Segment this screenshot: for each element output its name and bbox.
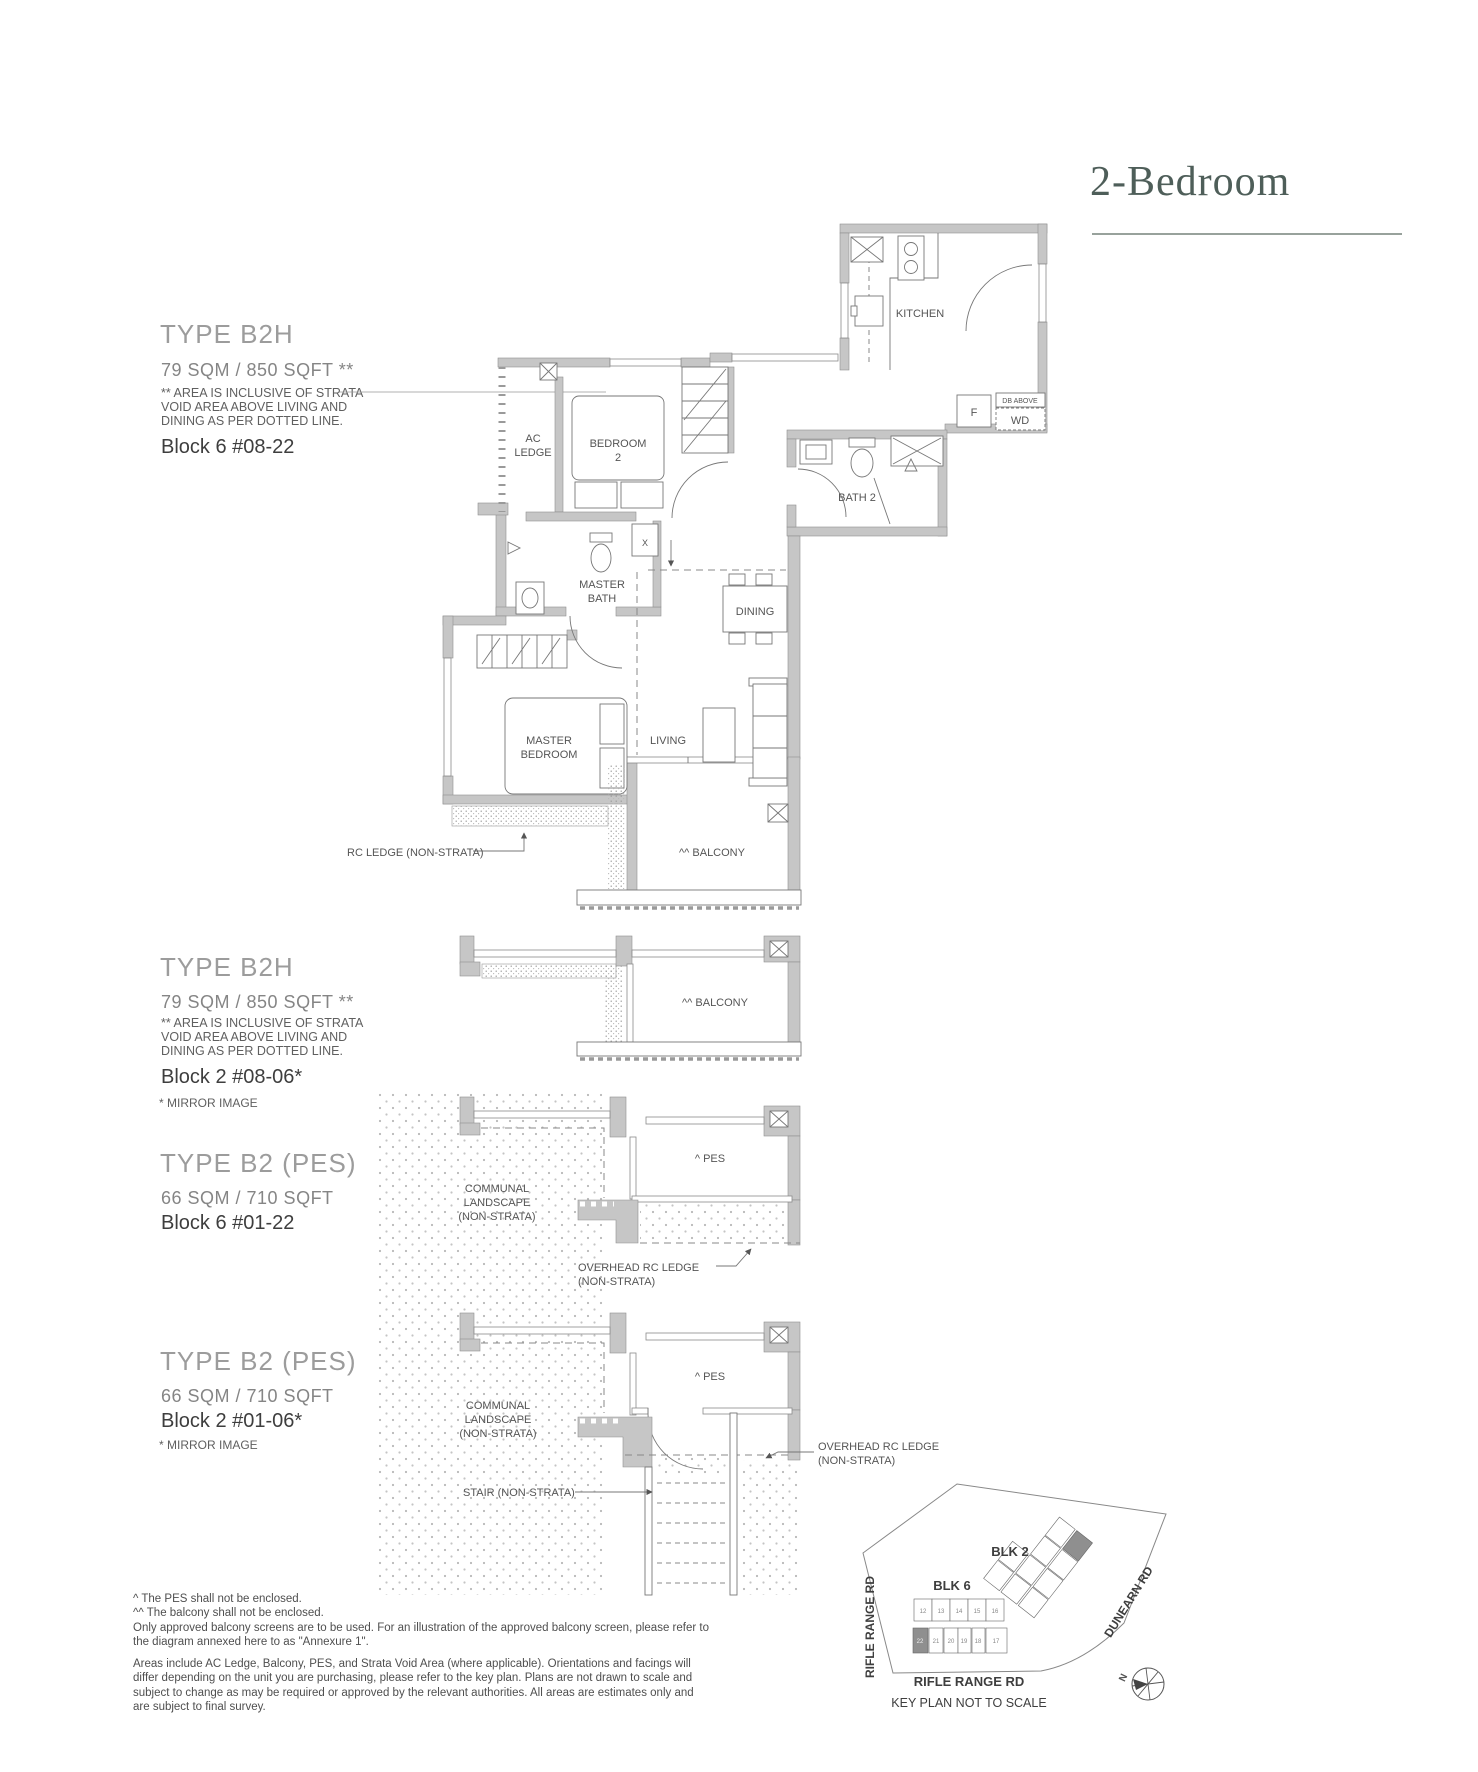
footnote-pes: ^ The PES shall not be enclosed. [133,1592,773,1606]
master-wardrobe [477,635,567,668]
section1-type: TYPE B2H [160,319,294,350]
x-box-column [770,941,788,957]
room-label-bedroom2-1: BEDROOM [590,438,647,450]
window [474,950,616,957]
unit-18: 18 [975,1639,982,1645]
title-underline [1092,233,1402,235]
rc-strip-column [605,964,623,1042]
label-communal-1: COMMUNAL [465,1183,529,1195]
living-furniture [703,678,787,786]
unit-14: 14 [956,1609,963,1615]
overhead-ledge-arrow [716,1249,751,1266]
pes-side-screen [630,1353,636,1415]
room-label-pes: ^ PES [695,1371,725,1383]
unit-22-highlighted: 22 [917,1639,924,1645]
master-bath-door-arc [570,616,622,668]
landscape-right-strip [742,1460,800,1595]
section4-mirror: * MIRROR IMAGE [159,1438,258,1452]
label-blk6: BLK 6 [933,1578,971,1593]
label-communal-3: (NON-STRATA) [459,1428,536,1440]
section2-block: Block 2 #08-06* [161,1066,302,1089]
unit-15: 15 [974,1609,981,1615]
window [646,1333,764,1340]
room-label-bedroom2-2: 2 [615,452,621,464]
unit-21: 21 [933,1639,940,1645]
floorplan-page: 2-Bedroom TYPE B2H 79 SQM / 850 SQFT ** … [0,0,1478,1772]
unit-16: 16 [992,1609,999,1615]
room-label-masterbath-1: MASTER [579,579,625,591]
communal-landscape-field [376,1300,606,1595]
stair [645,1413,737,1595]
label-wd: WD [1011,415,1029,427]
label-fridge: F [971,407,978,419]
page-title: 2-Bedroom [1090,158,1290,206]
keyplan-caption: KEY PLAN NOT TO SCALE [891,1696,1046,1710]
x-box-column [770,1327,788,1343]
room-label-masterbath-2: BATH [588,593,617,605]
compass-north-label: N [1117,1672,1130,1683]
label-overhead-ledge-1: OVERHEAD RC LEDGE [578,1262,699,1274]
balcony-rc-strip [607,765,625,889]
section4-block: Block 2 #01-06* [161,1410,302,1433]
footnotes: ^ The PES shall not be enclosed. ^^ The … [133,1592,773,1714]
label-overhead-ledge-1: OVERHEAD RC LEDGE [818,1441,939,1453]
pes-front-screen-stub [632,1408,648,1414]
room-label-kitchen: KITCHEN [896,308,944,320]
label-blk2: BLK 2 [991,1544,1029,1559]
footnote-areas-4: are subject to final survey. [133,1700,773,1714]
balcony-screen-track [627,964,633,1042]
pes-front-screen [703,1408,792,1414]
section3-block: Block 6 #01-22 [161,1212,294,1235]
label-communal-2: LANDSCAPE [465,1414,532,1426]
rc-ledge-strip [482,964,616,978]
label-stair: STAIR (NON-STRATA) [463,1487,575,1499]
section4-type: TYPE B2 (PES) [160,1346,357,1377]
walls [443,224,1047,897]
balcony-structure [577,765,801,908]
label-shaft-x: X [642,538,648,548]
section2-note-line3: DINING AS PER DOTTED LINE. [161,1044,363,1058]
section4-area: 66 SQM / 710 SQFT [161,1386,334,1407]
room-label-masterbedroom-1: MASTER [526,735,572,747]
unit-19: 19 [961,1639,968,1645]
unit-20: 20 [948,1639,955,1645]
section2-type: TYPE B2H [160,952,294,983]
label-communal-3: (NON-STRATA) [458,1211,535,1223]
label-rc-ledge: RC LEDGE (NON-STRATA) [347,847,484,859]
label-overhead-ledge-2: (NON-STRATA) [578,1276,655,1288]
balcony-slab [577,1042,801,1056]
footnote-screens-1: Only approved balcony screens are to be … [133,1621,773,1635]
section3-area: 66 SQM / 710 SQFT [161,1188,334,1209]
section2-note: ** AREA IS INCLUSIVE OF STRATA VOID AREA… [161,1016,363,1058]
unit-17: 17 [993,1639,1000,1645]
floor-plan-pes-1: ^ PES COMMUNAL LANDSCAPE (NON-STRATA) OV… [370,1085,840,1300]
bedroom2-door-arc [672,462,728,518]
room-label-masterbedroom-2: BEDROOM [521,749,578,761]
window [474,1327,610,1334]
footnote-areas-2: differ depending on the unit you are pur… [133,1671,773,1685]
road-label-dunearn: DUNEARN RD [1101,1564,1156,1640]
x-box-column [770,1111,788,1127]
label-communal-1: COMMUNAL [466,1400,530,1412]
footnote-balcony: ^^ The balcony shall not be enclosed. [133,1606,773,1620]
key-plan: 12 13 14 15 16 22 21 20 19 18 17 BLK 2 B… [845,1475,1175,1720]
pes-side-screen [630,1137,636,1199]
floor-plan-balcony-detail: ^^ BALCONY [440,925,820,1075]
footnote-spacer [133,1649,773,1657]
room-label-bath2: BATH 2 [838,492,876,504]
section2-note-line1: ** AREA IS INCLUSIVE OF STRATA [161,1016,363,1030]
road-label-rifle-range-bottom: RIFLE RANGE RD [914,1674,1025,1689]
label-communal-2: LANDSCAPE [464,1197,531,1209]
unit-12: 12 [920,1609,927,1615]
window [474,1111,610,1118]
section3-type: TYPE B2 (PES) [160,1148,357,1179]
room-label-ac-2: LEDGE [514,447,551,459]
pes-front-screen [632,1196,792,1202]
kitchen-door-arc [966,265,1032,331]
landscape-below-pes [640,1200,788,1243]
bath2-fixtures [798,436,943,524]
room-label-dining: DINING [736,606,775,618]
unit-13: 13 [938,1609,945,1615]
landscape-below-door [655,1455,730,1475]
label-overhead-ledge-2: (NON-STRATA) [818,1455,895,1467]
section2-area: 79 SQM / 850 SQFT ** [161,992,354,1013]
road-label-rifle-range-left: RIFLE RANGE RD [863,1576,877,1678]
room-label-ac-1: AC [525,433,540,445]
footnote-areas-1: Areas include AC Ledge, Balcony, PES, an… [133,1657,773,1671]
room-label-pes: ^ PES [695,1153,725,1165]
room-label-balcony: ^^ BALCONY [679,847,746,859]
footnote-screens-2: the diagram annexed here to as "Annexure… [133,1635,773,1649]
section2-mirror: * MIRROR IMAGE [159,1096,258,1110]
hall-closet [682,367,728,453]
communal-landscape-field [376,1092,606,1300]
label-db-above: DB ABOVE [1002,398,1038,405]
section1-block: Block 6 #08-22 [161,436,294,459]
room-label-living: LIVING [650,735,686,747]
window [632,950,764,957]
floor-plan-main: AC LEDGE BEDROOM 2 KITCHEN F DB ABOVE WD… [280,190,1080,920]
rc-ledge [452,806,608,851]
section2-note-line2: VOID AREA ABOVE LIVING AND [161,1030,363,1044]
window [646,1117,764,1124]
room-label-balcony: ^^ BALCONY [682,997,749,1009]
compass-icon: N [1117,1668,1164,1700]
footnote-areas-3: subject to change as may be required or … [133,1686,773,1700]
